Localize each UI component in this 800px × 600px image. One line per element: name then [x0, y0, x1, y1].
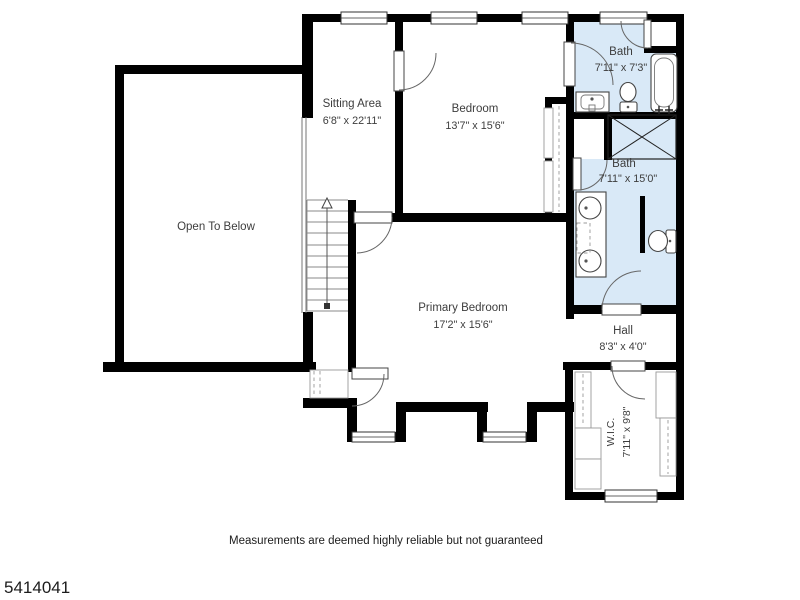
dims-wic: 7'11" x 9'8" — [621, 406, 633, 457]
label-sitting-area: Sitting Area — [323, 98, 382, 110]
label-wic: W.I.C. — [605, 418, 617, 447]
double-vanity-icon — [576, 192, 606, 277]
dims-bath-upper: 7'11" x 7'3" — [595, 62, 648, 74]
dims-primary-bedroom: 17'2" x 15'6" — [433, 319, 492, 331]
dims-bedroom: 13'7" x 15'6" — [445, 120, 504, 132]
dormer-window — [483, 432, 526, 442]
floor-plan-page: Open To Below Sitting Area 6'8" x 22'11"… — [0, 0, 800, 600]
disclaimer-text: Measurements are deemed highly reliable … — [229, 535, 543, 547]
door — [611, 361, 645, 399]
stairs-up-arrow — [322, 198, 332, 309]
label-bedroom: Bedroom — [452, 103, 499, 115]
toilet-icon — [620, 83, 637, 113]
dims-bath-primary: 7'11" x 15'0" — [599, 173, 658, 185]
label-hall: Hall — [613, 325, 633, 337]
plan-id: 5414041 — [4, 578, 70, 597]
floor-plan: Open To Below Sitting Area 6'8" x 22'11"… — [0, 0, 800, 600]
linen-closet-floor — [572, 117, 605, 159]
door — [352, 368, 388, 406]
window — [600, 12, 647, 24]
stairs — [302, 117, 348, 313]
window — [522, 12, 568, 24]
bathtub-icon — [651, 54, 677, 114]
dims-hall: 8'3" x 4'0" — [599, 341, 646, 353]
bath-upper-closet-floor — [648, 18, 680, 49]
window — [341, 12, 387, 24]
label-bath-upper: Bath — [609, 46, 633, 58]
primary-closet — [310, 370, 348, 398]
label-primary-bedroom: Primary Bedroom — [418, 302, 507, 314]
label-bath-primary: Bath — [612, 158, 636, 170]
dormer-window — [352, 432, 395, 442]
door — [394, 51, 436, 91]
window — [605, 490, 657, 502]
label-open-to-below: Open To Below — [177, 221, 255, 233]
dims-sitting-area: 6'8" x 22'11" — [323, 115, 382, 127]
wic-label-group: W.I.C. 7'11" x 9'8" — [605, 406, 633, 457]
sink-vanity-icon — [576, 92, 609, 112]
toilet-icon — [649, 230, 677, 253]
window — [431, 12, 477, 24]
door — [354, 212, 392, 253]
